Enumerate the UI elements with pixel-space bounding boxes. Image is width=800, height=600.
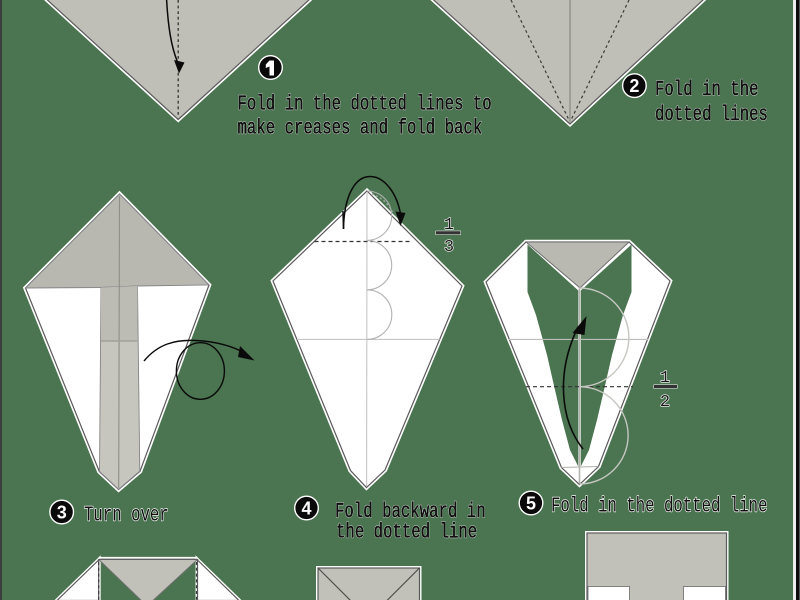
svg-text:dotted lines: dotted lines xyxy=(655,102,768,127)
svg-text:Fold in the: Fold in the xyxy=(655,77,759,102)
svg-text:Turn over: Turn over xyxy=(84,502,169,527)
svg-text:make creases and fold back: make creases and fold back xyxy=(238,115,483,140)
svg-text:3: 3 xyxy=(57,503,67,523)
svg-text:Fold in the dotted line: Fold in the dotted line xyxy=(551,493,768,518)
svg-text:3: 3 xyxy=(444,238,454,257)
svg-text:5: 5 xyxy=(526,494,536,514)
svg-text:the dotted line: the dotted line xyxy=(336,519,477,544)
svg-text:Fold in the dotted lines to: Fold in the dotted lines to xyxy=(238,91,492,116)
svg-text:4: 4 xyxy=(301,499,311,519)
svg-text:2: 2 xyxy=(629,76,639,96)
svg-text:2: 2 xyxy=(660,393,670,412)
